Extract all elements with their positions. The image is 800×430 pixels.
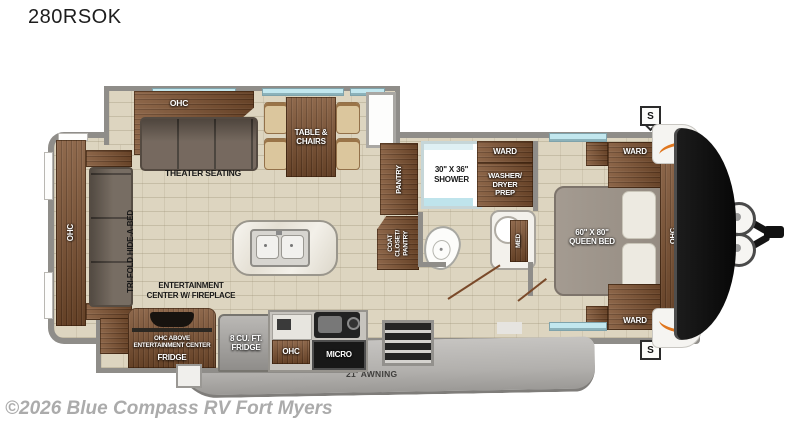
hitch-coupler — [764, 226, 784, 238]
bedroom-ward-step — [586, 142, 608, 166]
coat-closet-label: COAT CLOSET/ PANTRY — [387, 230, 410, 257]
coat-closet-cabinet: COAT CLOSET/ PANTRY — [377, 216, 419, 270]
eagle-icon — [692, 346, 706, 376]
kitchen-ohc-label: OHC — [282, 347, 299, 356]
theater-seating-label: THEATER SEATING — [150, 168, 256, 178]
counter-top — [272, 314, 312, 340]
entertainment-center-label: ENTERTAINMENT CENTER W/ FIREPLACE — [130, 281, 252, 300]
bedroom-window-icon — [549, 133, 607, 142]
micro-label: MICRO — [326, 350, 352, 359]
bath-ward-label: WARD — [493, 147, 517, 156]
sofa-armrest — [86, 150, 132, 167]
rear-ohc-cabinet: OHC — [56, 140, 86, 326]
queen-bed-label: 60" X 80" QUEEN BED — [556, 222, 628, 252]
floor-vent — [176, 364, 202, 388]
entry-door-opening — [497, 322, 522, 334]
fridge-8cuft: 8 CU. FT. FRIDGE — [218, 314, 274, 372]
dinette-window-icon — [366, 92, 396, 148]
side-cabinet — [100, 318, 130, 354]
brand-text: Jayco — [706, 339, 722, 382]
med-cabinet: MED — [510, 220, 528, 262]
fireplace-icon — [150, 312, 194, 327]
dinette-chair — [264, 102, 288, 134]
speaker-badge: S — [640, 106, 661, 126]
cooktop-icon — [314, 312, 360, 338]
bath-wardrobe: WARD — [477, 141, 533, 163]
ohc-above-ec-label: OHC ABOVE ENTERTAINMENT CENTER — [128, 335, 216, 350]
front-cap: Jayco — [674, 128, 736, 340]
island-sink-icon — [250, 229, 310, 267]
sink-drain — [290, 244, 293, 247]
entry-steps — [382, 320, 434, 366]
griddle — [318, 316, 342, 333]
burner-knob — [347, 317, 360, 330]
rear-window-icon — [44, 272, 53, 319]
dinette-table: TABLE & CHAIRS — [286, 97, 336, 177]
dinette-label: TABLE & CHAIRS — [295, 128, 328, 147]
speaker-letter: S — [647, 111, 654, 122]
shower-glass — [424, 144, 473, 150]
shower: 30" X 36" SHOWER — [421, 141, 482, 209]
rear-window-icon — [44, 152, 53, 200]
fridge-8cuft-label: 8 CU. FT. FRIDGE — [230, 334, 262, 353]
sink-bowl — [256, 235, 279, 259]
washer-dryer-prep: WASHER/ DRYER PREP — [477, 163, 533, 207]
slideout-window-icon — [262, 88, 344, 96]
dinette-chair — [264, 138, 288, 170]
watermark: ©2026 Blue Compass RV Fort Myers — [5, 398, 333, 420]
theater-ohc-label: OHC — [134, 98, 224, 108]
sink-drain — [264, 244, 267, 247]
fireplace-band — [132, 328, 212, 332]
counter-appliance — [277, 319, 291, 330]
washer-dryer-label: WASHER/ DRYER PREP — [488, 172, 522, 199]
jayco-logo: Jayco — [688, 324, 728, 398]
page-title: 280RSOK — [28, 6, 122, 29]
entertainment-center: OHC ABOVE ENTERTAINMENT CENTER FRIDGE — [128, 308, 216, 368]
interior-wall — [533, 141, 538, 211]
faucet-icon — [276, 231, 282, 235]
ec-fridge-label: FRIDGE — [128, 353, 216, 362]
microwave: MICRO — [312, 340, 366, 370]
shower-label: 30" X 36" SHOWER — [434, 165, 469, 184]
med-label: MED — [515, 234, 523, 248]
shower-glass — [424, 198, 473, 206]
floorplan-canvas: 280RSOK 21' AWNING OHC TRI-FOLD HIDE-A-B… — [0, 0, 800, 430]
theater-seating — [140, 117, 258, 171]
dinette-chair — [336, 102, 360, 134]
interior-wall — [418, 262, 446, 267]
interior-wall — [418, 212, 423, 266]
rear-ohc-label: OHC — [66, 224, 75, 241]
pantry-cabinet: PANTRY — [380, 143, 418, 215]
sink-bowl — [281, 235, 304, 259]
bedroom-window-icon — [549, 322, 607, 331]
brand-underline — [723, 340, 725, 382]
pantry-label: PANTRY — [395, 165, 404, 194]
kitchen-ohc-cabinet: OHC — [272, 340, 310, 364]
dinette-chair — [336, 138, 360, 170]
